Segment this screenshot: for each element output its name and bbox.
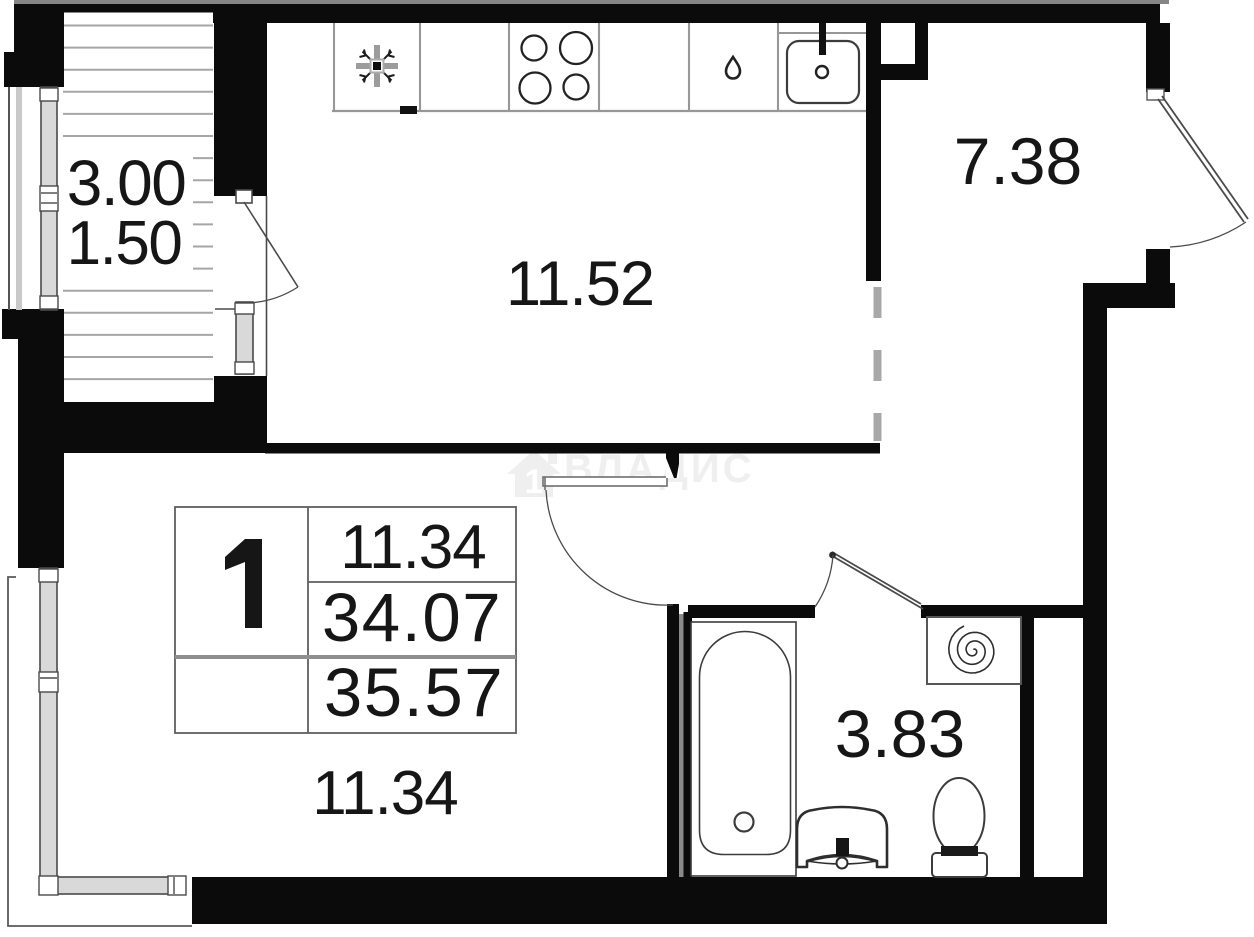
svg-text:1: 1 [525,463,544,501]
svg-text:1.50: 1.50 [67,209,182,278]
svg-text:7.38: 7.38 [954,124,1082,198]
svg-text:35.57: 35.57 [324,654,504,731]
svg-text:11.34: 11.34 [312,759,458,828]
svg-text:11.52: 11.52 [506,249,654,319]
svg-text:11.34: 11.34 [340,513,486,582]
svg-text:3.83: 3.83 [835,697,965,772]
svg-text:34.07: 34.07 [322,579,502,656]
